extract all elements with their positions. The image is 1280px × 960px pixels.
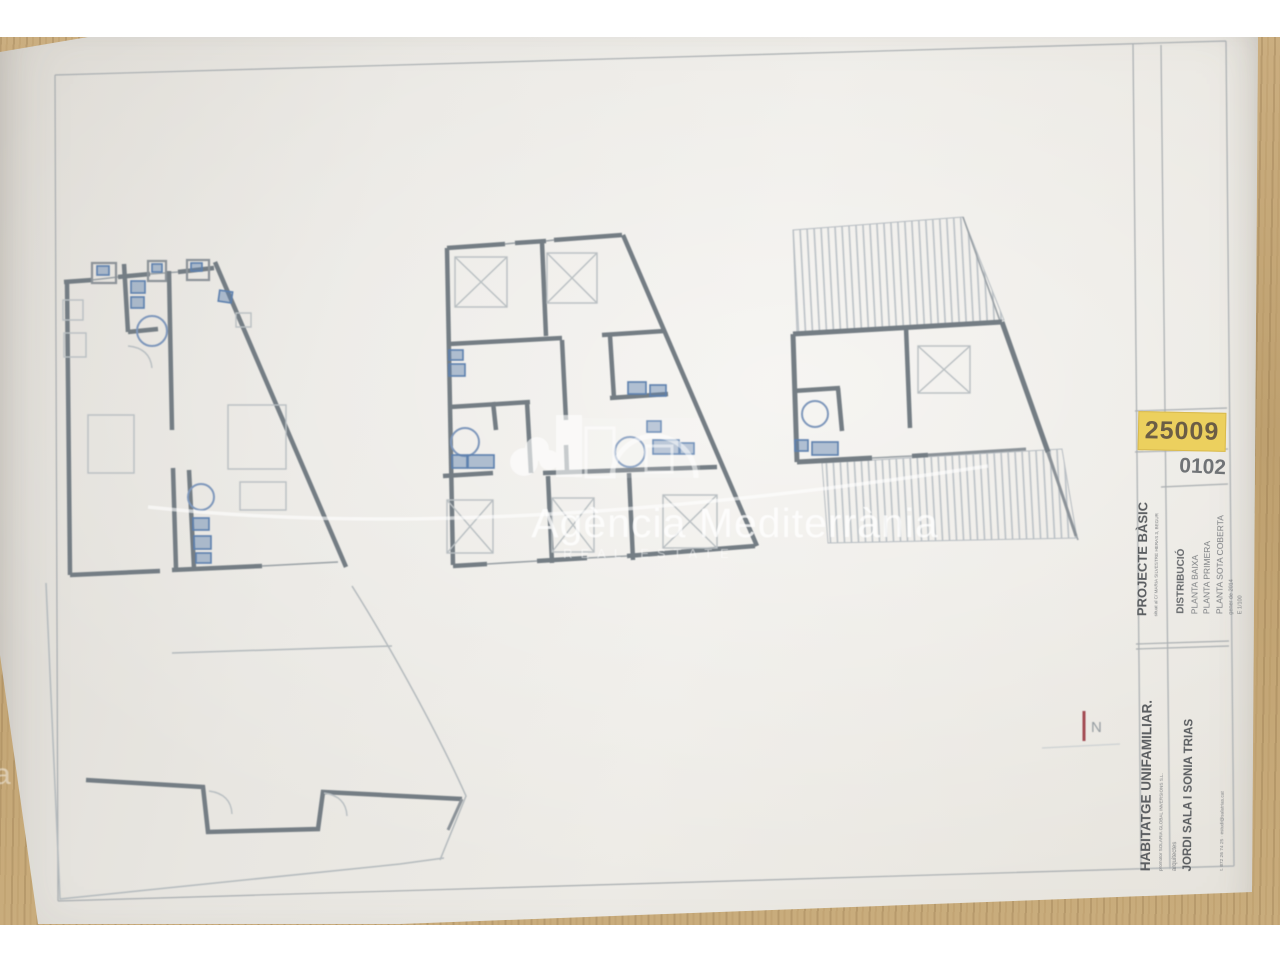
drawing-title: DISTRIBUCIÓ (1175, 549, 1187, 614)
drawing-line-2: PLANTA PRIMERA (1203, 541, 1214, 614)
architects-names: JORDI SALA I SONIA TRIAS (1182, 718, 1197, 871)
project-title: PROJECTE BÀSIC (1135, 502, 1151, 616)
watermark-fragment: a (0, 758, 11, 792)
letterbox-bottom (0, 925, 1280, 960)
north-label: N (1091, 719, 1102, 736)
north-arrow-icon: N (1042, 711, 1120, 748)
agency-code-overlay: 0102 (1169, 451, 1226, 483)
agency-code-number: 0102 (1179, 454, 1227, 480)
titleblock-architects-cell: arquitectes JORDI SALA I SONIA TRIAS t. … (1172, 655, 1228, 872)
client-subtitle: promotor SOLARIA GLOBAL INVERSIONS S.L. (1157, 773, 1163, 871)
watermark-brand-text: Agència Mediterrània (505, 500, 965, 547)
plan-planta-baixa (63, 260, 346, 575)
site-plan-outline (46, 583, 466, 899)
drawing-line-1: PLANTA BAIXA (1190, 554, 1200, 613)
titleblock-drawing-cell: DISTRIBUCIÓ PLANTA BAIXA PLANTA PRIMERA … (1175, 488, 1245, 615)
watermark-tagline-text: REAL ESTATE (520, 546, 780, 561)
floor-plans-svg: .w{stroke:#747d84;stroke-width:4.5;fill:… (0, 0, 1280, 960)
titleblock-project-cell: PROJECTE BÀSIC situat al C/ MARIA SILVES… (1135, 470, 1160, 616)
drawing-scale: E 1/100 (1237, 595, 1244, 614)
agency-ref-number: 25009 (1144, 416, 1219, 447)
client-title: HABITATGE UNIFAMILIAR. (1138, 700, 1155, 871)
photo-of-floorplan-sheet: .w{stroke:#747d84;stroke-width:4.5;fill:… (0, 0, 1280, 960)
project-subtitle: situat al C/ MARIA SILVESTRE HERAS 3, BE… (1153, 513, 1159, 616)
letterbox-top (0, 0, 1280, 37)
titleblock-client-cell: HABITATGE UNIFAMILIAR. promotor SOLARIA … (1138, 655, 1165, 871)
agency-ref-badge: 25009 (1138, 411, 1227, 452)
drawing-date: gener de 2014 (1228, 579, 1235, 615)
architects-label: arquitectes (1172, 841, 1179, 870)
plan-planta-sota-coberta (793, 217, 1078, 543)
architects-contact: t. 872 26 74 25 · estudi@salatrias.cat (1220, 792, 1226, 872)
drawing-line-3: PLANTA SOTA COBERTA (1215, 515, 1226, 614)
